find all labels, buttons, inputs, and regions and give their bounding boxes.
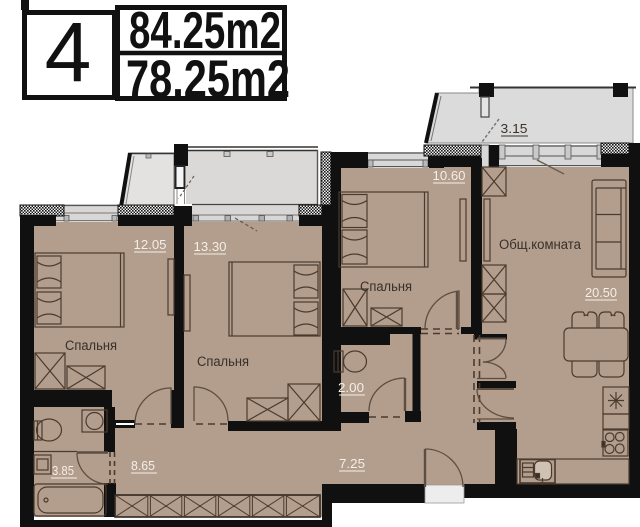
svg-text:20.50: 20.50 xyxy=(585,285,617,300)
svg-text:Спальня: Спальня xyxy=(197,354,249,369)
svg-text:10.60: 10.60 xyxy=(433,168,466,183)
svg-text:4: 4 xyxy=(45,5,92,99)
svg-text:8.65: 8.65 xyxy=(131,458,155,473)
svg-text:3.85: 3.85 xyxy=(52,463,74,478)
svg-text:12.05: 12.05 xyxy=(134,237,167,252)
svg-text:2.00: 2.00 xyxy=(338,380,364,395)
svg-text:Спальня: Спальня xyxy=(65,338,117,353)
svg-text:7.25: 7.25 xyxy=(339,456,365,471)
svg-text:3.15: 3.15 xyxy=(501,121,528,136)
svg-text:Спальня: Спальня xyxy=(360,279,412,294)
svg-text:13.30: 13.30 xyxy=(194,239,227,254)
svg-text:78.25m2: 78.25m2 xyxy=(126,50,290,109)
svg-text:Общ.комната: Общ.комната xyxy=(499,237,581,252)
